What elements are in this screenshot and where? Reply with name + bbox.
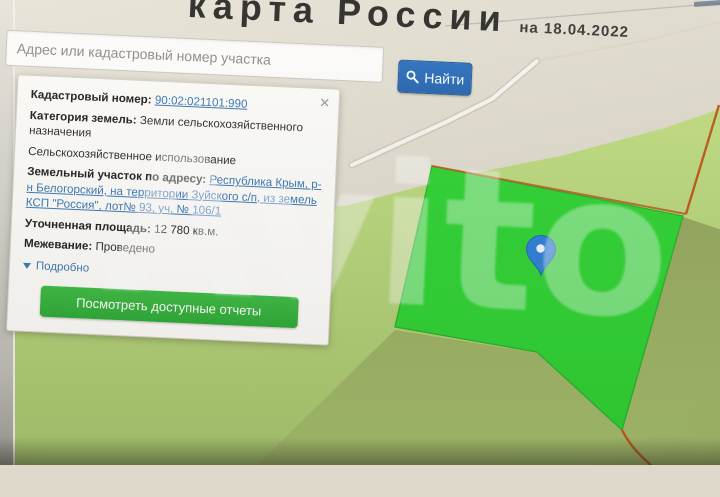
search-button[interactable]: Найти xyxy=(397,60,472,96)
search-icon xyxy=(405,70,419,84)
map-date: на 18.04.2022 xyxy=(519,19,629,41)
field-address: Земельный участок по адресу: Республика … xyxy=(25,164,322,224)
browser-page: карта Россиина 18.04.2022 Найти × Кадаст… xyxy=(0,0,720,497)
parcel-info-panel: × Кадастровый номер: 90:02:021101:990 Ка… xyxy=(6,74,340,345)
page-title-text: карта России xyxy=(187,0,509,39)
view-reports-button[interactable]: Посмотреть доступные отчеты xyxy=(39,285,298,328)
details-label: Подробно xyxy=(36,260,90,274)
close-icon[interactable]: × xyxy=(319,94,330,111)
cadastral-number-link[interactable]: 90:02:021101:990 xyxy=(155,94,248,111)
chevron-down-icon xyxy=(23,263,31,269)
details-toggle[interactable]: Подробно xyxy=(23,260,318,285)
search-button-label: Найти xyxy=(424,69,465,87)
page-title: карта Россиина 18.04.2022 xyxy=(187,0,630,46)
search-input[interactable] xyxy=(5,30,384,83)
